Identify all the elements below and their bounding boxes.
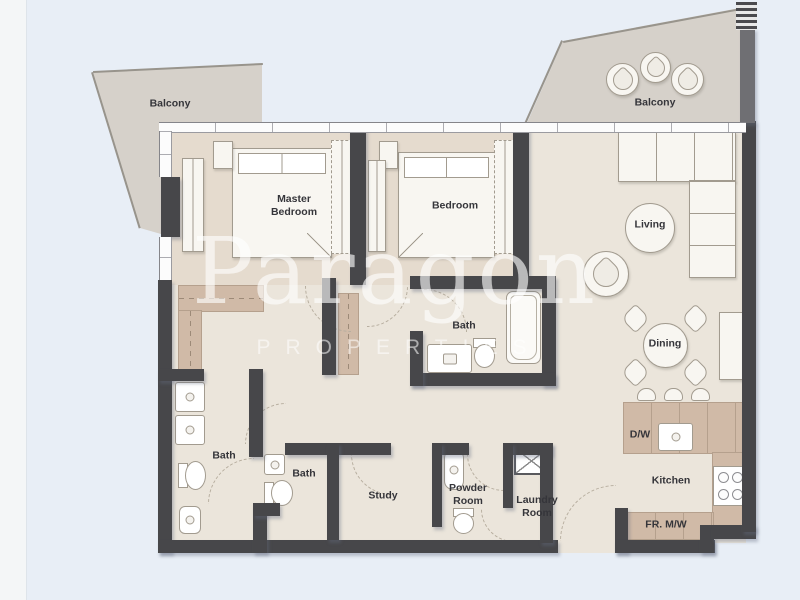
- window: [159, 131, 172, 177]
- label-dishwasher: D/W: [630, 428, 650, 441]
- balcony-chair: [640, 52, 671, 83]
- wall: [158, 280, 172, 553]
- left-margin-strip: [0, 0, 27, 600]
- sink-icon: [175, 415, 205, 445]
- console-table: [719, 312, 744, 380]
- wall: [158, 369, 204, 381]
- balcony-chair: [606, 63, 639, 96]
- room-label-master-bedroom: Master Bedroom: [254, 193, 334, 219]
- wall: [249, 369, 263, 457]
- room-label-bath-ensuite: Bath: [452, 319, 475, 332]
- sofa: [618, 132, 736, 182]
- room-label-dining: Dining: [649, 337, 682, 350]
- sink-icon: [175, 382, 205, 412]
- wall: [253, 503, 280, 516]
- pillows: [238, 153, 326, 174]
- sofa: [689, 180, 736, 278]
- toilet-icon: [264, 479, 291, 505]
- pillows: [404, 157, 489, 178]
- wall: [327, 443, 339, 540]
- chair-cushion: [674, 66, 702, 94]
- window-wall: [159, 122, 746, 133]
- wall: [410, 276, 556, 289]
- bar-stool: [691, 388, 710, 401]
- room-label-balcony-right: Balcony: [635, 96, 676, 109]
- room-label-balcony-left: Balcony: [150, 97, 191, 110]
- wall: [161, 177, 180, 237]
- room-label-laundry-room: Laundry Room: [506, 494, 568, 520]
- bar-stool: [637, 388, 656, 401]
- sink-icon: [264, 454, 285, 475]
- room-label-kitchen: Kitchen: [652, 474, 691, 487]
- wardrobe: [368, 160, 386, 252]
- room-label-bath-middle: Bath: [292, 467, 315, 480]
- room-label-living: Living: [635, 218, 666, 231]
- bidet-icon: [179, 506, 201, 534]
- wall: [742, 121, 756, 532]
- chair-cushion: [588, 256, 625, 293]
- wall-hatch: [736, 2, 757, 30]
- wardrobe-closet: [178, 285, 264, 312]
- room-label-powder-room: Powder Room: [436, 482, 500, 508]
- window: [159, 237, 172, 280]
- balcony-side-wall: [740, 28, 755, 123]
- wall: [158, 540, 558, 553]
- chair-cushion: [643, 55, 668, 80]
- wall: [322, 278, 336, 375]
- toilet-icon: [178, 459, 204, 490]
- bathtub-icon: [506, 291, 541, 364]
- floor-plan: Balcony Balcony Master Bedroom Bedroom L…: [0, 0, 800, 600]
- nightstand: [213, 141, 233, 169]
- kitchen-sink-icon: [658, 423, 693, 451]
- balcony-chair: [671, 63, 704, 96]
- toilet-icon: [469, 338, 498, 366]
- wall: [542, 289, 556, 386]
- vanity-icon: [427, 344, 472, 373]
- wall: [513, 128, 529, 285]
- wall: [410, 373, 556, 386]
- label-fridge-microwave: FR. M/W: [645, 518, 686, 531]
- chair-cushion: [609, 66, 637, 94]
- room-label-bath-left: Bath: [212, 449, 235, 462]
- wall: [410, 331, 423, 386]
- wall: [350, 128, 366, 285]
- room-label-study: Study: [368, 489, 397, 502]
- toilet-icon: [450, 508, 475, 532]
- bar-stool: [664, 388, 683, 401]
- room-label-bedroom: Bedroom: [432, 199, 478, 212]
- wardrobe: [182, 158, 204, 252]
- wardrobe-closet: [178, 310, 202, 375]
- blanket-fold: [307, 233, 331, 257]
- blanket-fold: [399, 233, 423, 257]
- armchair: [583, 251, 629, 297]
